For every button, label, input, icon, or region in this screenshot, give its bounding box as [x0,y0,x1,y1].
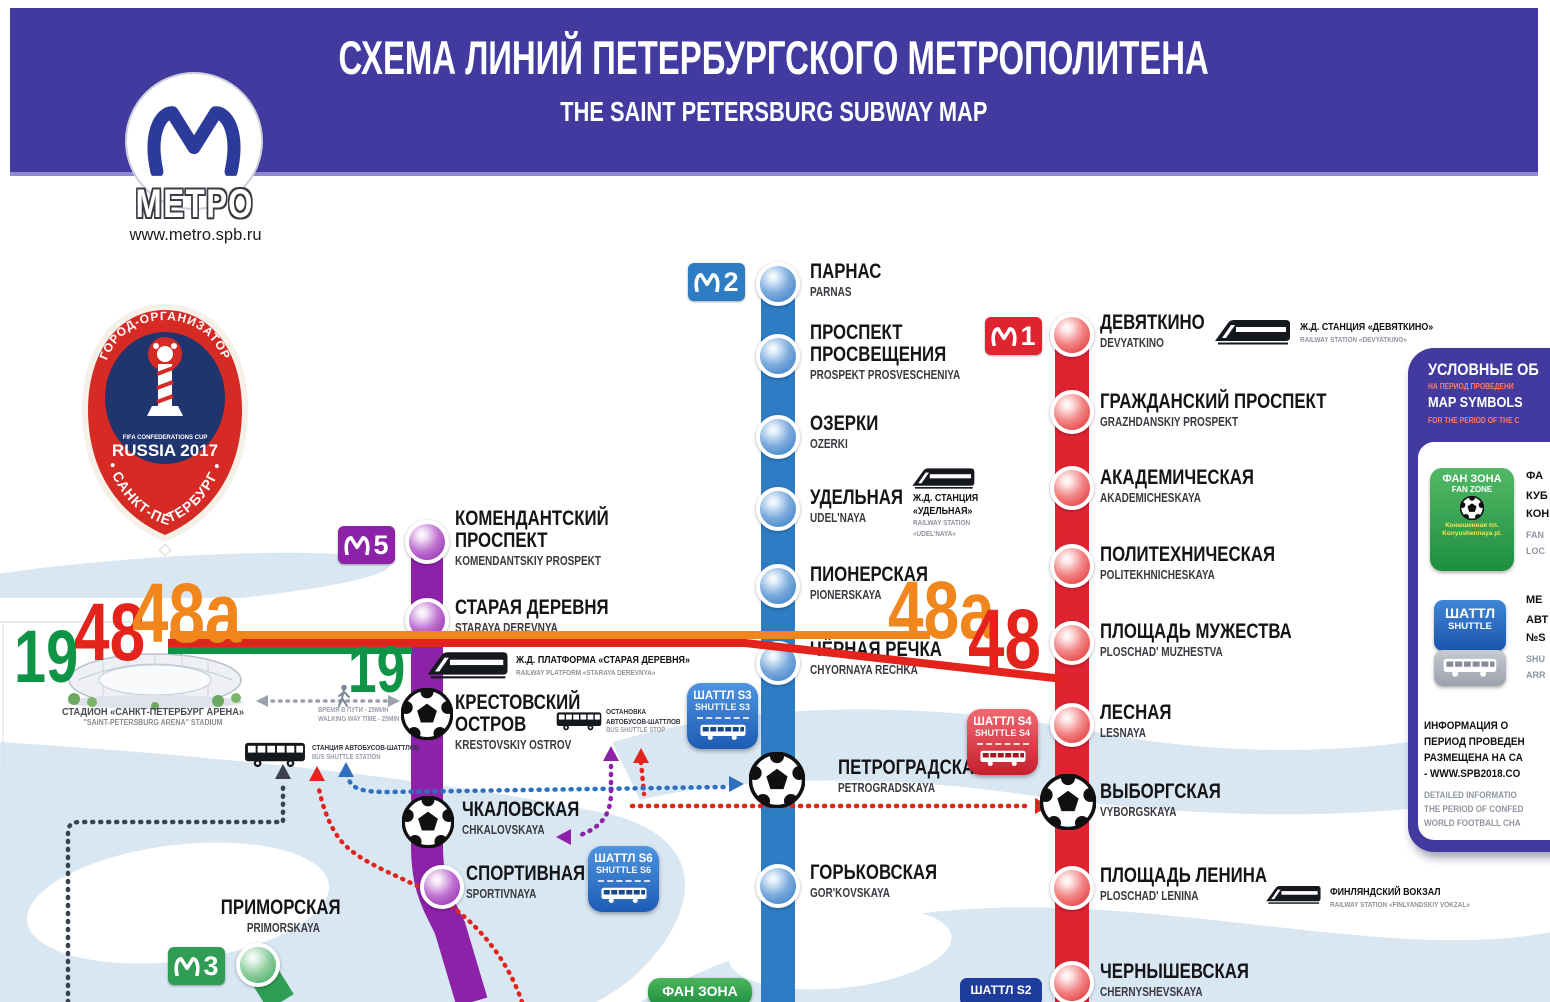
station-name-en: KOMENDANTSKIY PROSPEKT [455,554,609,568]
railway-note-ru: «УДЕЛЬНАЯ» [913,505,978,518]
station-name-en: CHERNYSHEVSKAYA [1100,985,1249,999]
station-name-en: PARNAS [810,285,881,299]
station-marker-akademicheskaya [1050,466,1094,510]
railway-note-en: RAILWAY STATION [913,518,978,528]
bus-stop-en: BUS SHUTTLE STOP [606,726,681,735]
station-marker-politekhnicheskaya [1050,544,1094,588]
station-marker-ploschad-lenina [1050,866,1094,910]
bus-station-ru: СТАНЦИЯ АВТОБУСОВ-ШАТТЛОВ [312,743,419,753]
legend-text-fragment: FAN [1526,530,1544,540]
station-name-ru: КРЕСТОВСКИЙ ОСТРОВ [455,692,580,736]
station-label: ПРИМОРСКАЯPRIMORSKAYA [196,897,320,935]
info-line: РАЗМЕЩЕНА НА СА [1424,752,1523,764]
legend-text-fragment: АВТ [1526,614,1548,626]
station-label: ПОЛИТЕХНИЧЕСКАЯPOLITEKHNICHESKAYA [1100,544,1319,582]
station-name-en: PLOSCHAD' MUZHESTVA [1100,645,1292,659]
station-name-en: PROSPEKT PROSVESCHENIYA [810,368,960,382]
station-name-ru: ОЗЕРКИ [810,413,878,435]
info-line-en: THE PERIOD OF CONFED [1424,804,1523,814]
station-name-en: PLOSCHAD' LENINA [1100,889,1267,903]
station-name-ru: ГОРЬКОВСКАЯ [810,862,937,884]
walking-time-ru: ВРЕМЯ В ПУТИ - 25МИН [318,706,399,715]
line-number: 1 [1020,321,1035,352]
station-name-en: DEVYATKINO [1100,336,1205,350]
station-marker-lesnaya [1050,703,1094,747]
station-marker-devyatkino [1050,313,1094,357]
panel-subtitle-ru: НА ПЕРИОД ПРОВЕДЕНИ [1428,382,1514,391]
station-name-en: CHYORNAYA RECHKA [810,663,942,677]
shuttle-badge-s4: ШАТТЛ S4SHUTTLE S4 [967,709,1038,775]
fan-zone-badge: ФАН ЗОНА [648,978,752,1002]
station-name-ru: СТАРАЯ ДЕРЕВНЯ [455,597,609,619]
fan-zone-ru: ФАН ЗОНА [1430,473,1514,485]
arrow-right-blue-icon [729,776,744,792]
station-label: КРЕСТОВСКИЙ ОСТРОВKRESTOVSKIY OSTROV [455,692,612,752]
shuttle-label-ru: ШАТТЛ S6 [588,853,659,865]
station-name-ru: ПЛОЩАДЬ ЛЕНИНА [1100,865,1267,887]
shuttle-legend-ru: ШАТТЛ [1434,605,1506,621]
walking-time-note: ВРЕМЯ В ПУТИ - 25МИН WALKING WAY TIME - … [318,706,414,724]
subway-map-screenshot: СТАДИОН «САНКТ-ПЕТЕРБУРГ АРЕНА» "SAINT-P… [0,0,1550,1002]
station-name-en: LESNAYA [1100,726,1171,740]
station-label: ПЛОЩАДЬ ЛЕНИНАPLOSCHAD' LENINA [1100,865,1309,903]
legend-text-fragment: КОН [1526,508,1549,520]
soccer-ball-icon [1460,496,1484,520]
railway-note-1: Ж.Д. СТАНЦИЯ«УДЕЛЬНАЯ»RAILWAY STATION«UD… [913,492,990,538]
station-name-en: CHKALOVSKAYA [462,823,579,837]
station-marker-prospekt-prosvescheniya [756,334,800,378]
metro-m-icon [174,957,200,976]
bus-station-en: BUS SHUTTLE STATION [312,753,419,762]
station-name-ru: ПРИМОРСКАЯ [221,897,320,919]
bus-icon [1442,657,1498,680]
shuttle-divider [977,743,1029,745]
station-name-en: POLITEKHNICHESKAYA [1100,568,1275,582]
railway-note-ru: Ж.Д. ПЛАТФОРМА «СТАРАЯ ДЕРЕВНЯ» [516,654,690,667]
railway-note-3: ФИНЛЯНДСКИЙ ВОКЗАЛRAILWAY STATION «FINLY… [1330,886,1494,909]
line-number: 3 [203,951,218,982]
station-label: ДЕВЯТКИНОDEVYATKINO [1100,312,1231,350]
station-name-ru: ПЕТРОГРАДСКАЯ [838,757,986,779]
station-label: ГОРЬКОВСКАЯGOR'KOVSKAYA [810,862,969,900]
bus-icon [600,886,648,906]
info-line-en: DETAILED INFORMATIO [1424,790,1517,800]
station-marker-parnas [756,262,800,306]
railway-note-ru: ФИНЛЯНДСКИЙ ВОКЗАЛ [1330,886,1470,899]
metro-m-icon [991,327,1017,346]
station-label: АКАДЕМИЧЕСКАЯAKADEMICHESKAYA [1100,467,1293,505]
metro-wordmark-text: МЕТРО [136,182,254,227]
map-title-ru-text: СХЕМА ЛИНИЙ ПЕТЕРБУРГСКОГО МЕТРОПОЛИТЕНА [339,30,1209,85]
station-name-en: UDEL'NAYA [810,511,903,525]
info-line: ПЕРИОД ПРОВЕДЕН [1424,736,1525,748]
railway-note-en: «UDEL'NAYA» [913,529,978,539]
walking-time-en: WALKING WAY TIME - 25MIN [318,715,399,724]
station-marker-gor-kovskaya [756,864,800,908]
station-label: ЛЕСНАЯLESNAYA [1100,702,1189,740]
legend-text-fragment: ФА [1526,470,1543,482]
station-marker-ploschad-muzhestva [1050,621,1094,665]
bus-stop-ru1: ОСТАНОВКА [606,707,681,717]
station-label: ПАРНАСPARNAS [810,261,899,299]
shuttle-label-en: SHUTTLE S4 [967,728,1038,738]
railway-note-en: RAILWAY STATION «DEVYATKINO» [1300,335,1433,345]
stadium-name-ru: СТАДИОН «САНКТ-ПЕТЕРБУРГ АРЕНА» [61,706,246,718]
line-badge-m2: 2 [688,263,745,301]
station-name-ru: АКАДЕМИЧЕСКАЯ [1100,467,1254,489]
route-annotation-48a: 48a [132,574,241,653]
station-marker-komendantskiy-prospekt [405,520,449,564]
stadium-name-en: "SAINT-PETERSBURG ARENA" STADIUM [61,718,246,727]
metro-website-url: www.metro.spb.ru [88,226,303,245]
shuttle-route-blue [347,774,726,792]
station-name-ru: ЧЕРНЫШЕВСКАЯ [1100,961,1249,983]
railway-note-ru: Ж.Д. СТАНЦИЯ «ДЕВЯТКИНО» [1300,321,1433,334]
legend-text-fragment: LOC [1526,546,1545,556]
route-annotation-48: 48 [968,600,1041,679]
shuttle-label-en: SHUTTLE S3 [687,702,758,712]
legend-text-fragment: №S [1526,632,1546,644]
line-number: 2 [723,267,738,298]
station-name-ru: ВЫБОРГСКАЯ [1100,781,1221,803]
panel-title-en: MAP SYMBOLS [1428,394,1523,411]
metro-m-icon [146,106,242,176]
shuttle-bus-legend-icon [1434,650,1506,686]
station-name-en: VYBORGSKAYA [1100,805,1221,819]
station-marker-primorskaya [236,943,280,987]
bus-shuttle-station-note: СТАНЦИЯ АВТОБУСОВ-ШАТТЛОВ BUS SHUTTLE ST… [312,743,438,762]
arrow-up-red2-icon [633,748,649,763]
bus-icon [699,723,747,743]
station-name-ru: ДЕВЯТКИНО [1100,312,1205,334]
station-name-ru: ПАРНАС [810,261,881,283]
station-label: ПЛОЩАДЬ МУЖЕСТВАPLOSCHAD' MUZHESTVA [1100,621,1340,659]
shuttle-badge-s3: ШАТТЛ S3SHUTTLE S3 [687,683,758,749]
train-icon [428,652,508,678]
station-name-en: SPORTIVNAYA [466,887,585,901]
station-label: ЧЕРНЫШЕВСКАЯCHERNYSHEVSKAYA [1100,961,1286,999]
fan-zone-legend-badge: ФАН ЗОНА FAN ZONE Конюшенная пл. Konyush… [1430,468,1514,571]
station-name-ru: ГРАЖДАНСКИЙ ПРОСПЕКТ [1100,391,1326,413]
line-badge-m3: 3 [168,947,225,985]
station-name-en: KRESTOVSKIY OSTROV [455,738,580,752]
station-name-ru: ПОЛИТЕХНИЧЕСКАЯ [1100,544,1275,566]
shuttle-divider [697,717,749,719]
bus-icon [245,743,305,767]
arrow-up-red-icon [309,766,325,781]
bus-shuttle-stop-note: ОСТАНОВКА АВТОБУСОВ-ШАТТЛОВ BUS SHUTTLE … [606,707,694,735]
line-badge-m1: 1 [985,317,1042,355]
train-icon [912,468,974,488]
station-label: КОМЕНДАНТСКИЙ ПРОСПЕКТKOMENDANTSKIY PROS… [455,508,647,568]
station-name-ru: СПОРТИВНАЯ [466,863,585,885]
station-name-ru: ЛЕСНАЯ [1100,702,1171,724]
station-marker-grazhdanskiy-prospekt [1050,390,1094,434]
soccer-ball-icon [749,752,805,808]
station-label: СТАРАЯ ДЕРЕВНЯSTARAYA DEREVNYA [455,597,647,635]
metro-m-icon [694,273,720,292]
arrow-up-dark-icon [275,764,291,779]
railway-note-0: Ж.Д. СТАНЦИЯ «ДЕВЯТКИНО»RAILWAY STATION … [1300,321,1457,344]
metro-m-icon [344,536,370,555]
shuttle-divider [598,880,650,882]
metro-wordmark: МЕТРО [95,182,295,227]
station-marker-ozerki [756,415,800,459]
station-name-ru: КОМЕНДАНТСКИЙ ПРОСПЕКТ [455,508,609,552]
shuttle-legend-badge: ШАТТЛ SHUTTLE [1434,600,1506,651]
shuttle-s2-badge: ШАТТЛ S2 [960,978,1042,1002]
station-label: ВЫБОРГСКАЯVYBORGSKAYA [1100,781,1251,819]
fan-zone-location-en: Konyushennaya pl. [1430,530,1514,538]
station-name-en: PRIMORSKAYA [221,921,320,935]
badge-russia-2017: RUSSIA 2017 [112,441,218,460]
confederations-cup-badge: FIFA CONFEDERATIONS CUP RUSSIA 2017 ГОРО… [70,298,260,563]
info-line: ИНФОРМАЦИЯ О [1424,720,1508,732]
station-name-en: GOR'KOVSKAYA [810,886,937,900]
info-line: - WWW.SPB2018.CO [1424,768,1520,780]
panel-subtitle-en: FOR THE PERIOD OF THE C [1428,416,1519,425]
map-title-ru: СХЕМА ЛИНИЙ ПЕТЕРБУРГСКОГО МЕТРОПОЛИТЕНА [10,30,1538,85]
railway-note-ru: Ж.Д. СТАНЦИЯ [913,492,978,505]
legend-text-fragment: SHU [1526,654,1545,664]
station-name-en: GRAZHDANSKIY PROSPEKT [1100,415,1326,429]
bus-icon [979,749,1027,769]
shuttle-legend-en: SHUTTLE [1434,621,1506,632]
fan-zone-en: FAN ZONE [1430,485,1514,494]
station-marker-udel-naya [756,487,800,531]
route-annotation-19: 19 [348,638,405,700]
station-marker-pionerskaya [756,564,800,608]
stadium-caption: СТАДИОН «САНКТ-ПЕТЕРБУРГ АРЕНА» "SAINT-P… [48,706,258,727]
station-name-en: PETROGRADSKAYA [838,781,986,795]
map-title-en-text: THE SAINT PETERSBURG SUBWAY MAP [560,96,987,128]
line-badge-m5: 5 [338,526,395,564]
legend-text-fragment: МЕ [1526,594,1543,606]
legend-text-fragment: ARR [1526,670,1546,680]
soccer-ball-icon [1040,774,1096,830]
soccer-ball-icon [402,796,454,848]
route-annotation-19: 19 [14,622,78,692]
shuttle-badge-s6: ШАТТЛ S6SHUTTLE S6 [588,846,659,912]
station-label: УДЕЛЬНАЯUDEL'NAYA [810,487,926,525]
station-name-en: STARAYA DEREVNYA [455,621,609,635]
station-marker-sportivnaya [420,865,464,909]
shuttle-route-red-c [641,762,644,794]
shuttle-label-ru: ШАТТЛ S4 [967,716,1038,728]
railway-note-en: RAILWAY STATION «FINLYANDSKIY VOKZAL» [1330,900,1470,910]
station-label: ГРАЖДАНСКИЙ ПРОСПЕКТGRAZHDANSKIY PROSPEK… [1100,391,1383,429]
railway-note-en: RAILWAY PLATFORM «STARAYA DEREVNYA» [516,668,690,678]
station-label: ЧКАЛОВСКАЯCHKALOVSKAYA [462,799,609,837]
railway-note-2: Ж.Д. ПЛАТФОРМА «СТАРАЯ ДЕРЕВНЯ»RAILWAY P… [516,654,721,677]
legend-text-fragment: КУБ [1526,490,1548,502]
info-line-en: WORLD FOOTBALL CHA [1424,818,1521,828]
shuttle-label-en: SHUTTLE S6 [588,865,659,875]
station-label: ОЗЕРКИOZERKI [810,413,895,451]
station-marker-chyornaya-rechka [756,641,800,685]
station-name-en: OZERKI [810,437,878,451]
bus-stop-ru2: АВТОБУСОВ-ШАТТЛОВ [606,717,681,727]
shuttle-label-ru: ШАТТЛ S3 [687,690,758,702]
station-marker-chernyshevskaya [1050,961,1094,1002]
fan-zone-location-ru: Конюшенная пл. [1430,522,1514,530]
station-name-ru: ЧКАЛОВСКАЯ [462,799,579,821]
line-number: 5 [373,530,388,561]
station-label: ПРОСПЕКТ ПРОСВЕЩЕНИЯPROSPEKT PROSVESCHEN… [810,322,998,382]
arrow-up-blue-icon [338,762,354,777]
station-name-ru: ПРОСПЕКТ ПРОСВЕЩЕНИЯ [810,322,960,366]
station-name-ru: УДЕЛЬНАЯ [810,487,903,509]
station-name-ru: ПЛОЩАДЬ МУЖЕСТВА [1100,621,1292,643]
station-marker-staraya-derevnya [405,598,449,642]
station-name-en: AKADEMICHESKAYA [1100,491,1254,505]
map-symbols-panel: УСЛОВНЫЕ ОБ НА ПЕРИОД ПРОВЕДЕНИ MAP SYMB… [1408,348,1550,852]
panel-title-ru: УСЛОВНЫЕ ОБ [1428,360,1539,380]
